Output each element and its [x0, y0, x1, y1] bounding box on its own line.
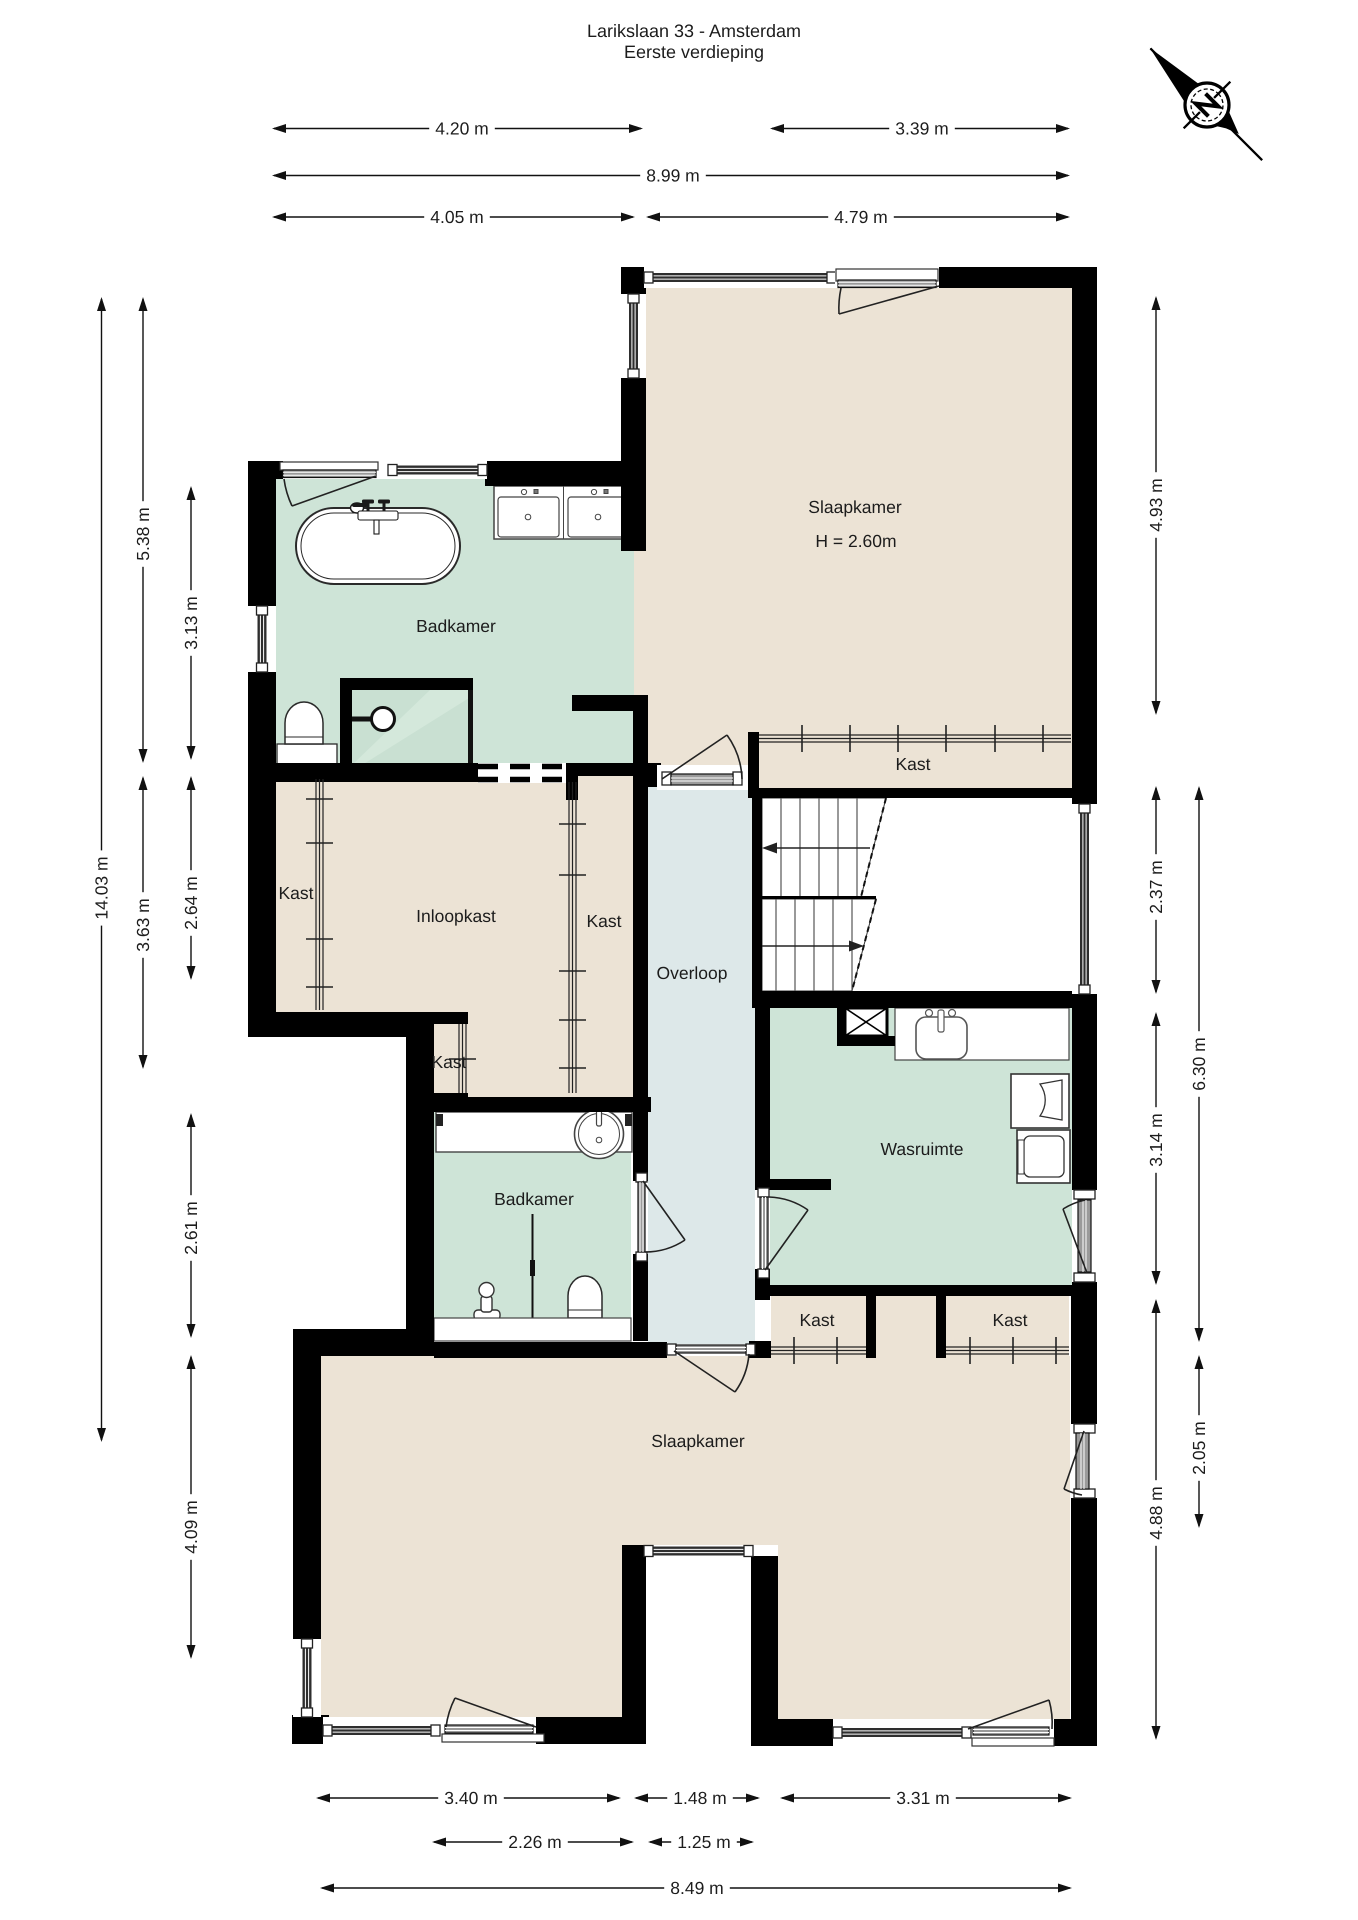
svg-text:Kast: Kast [586, 911, 621, 931]
svg-text:Inloopkast: Inloopkast [416, 906, 496, 926]
svg-text:8.49 m: 8.49 m [670, 1878, 724, 1898]
svg-text:Kast: Kast [895, 754, 930, 774]
svg-text:3.13 m: 3.13 m [181, 596, 201, 650]
svg-text:Kast: Kast [992, 1310, 1027, 1330]
svg-text:3.14 m: 3.14 m [1146, 1113, 1166, 1167]
svg-text:4.09 m: 4.09 m [181, 1500, 201, 1554]
svg-text:3.31 m: 3.31 m [896, 1788, 950, 1808]
svg-text:Kast: Kast [799, 1310, 834, 1330]
svg-text:2.37 m: 2.37 m [1146, 860, 1166, 914]
svg-text:3.63 m: 3.63 m [133, 898, 153, 952]
svg-text:Badkamer: Badkamer [494, 1189, 574, 1209]
svg-text:4.05 m: 4.05 m [430, 207, 484, 227]
svg-text:8.99 m: 8.99 m [646, 166, 700, 186]
svg-text:1.48 m: 1.48 m [673, 1788, 727, 1808]
svg-text:4.93 m: 4.93 m [1146, 478, 1166, 532]
svg-text:Eerste verdieping: Eerste verdieping [624, 42, 764, 62]
svg-text:3.39 m: 3.39 m [895, 119, 949, 139]
svg-text:2.26 m: 2.26 m [508, 1832, 562, 1852]
svg-text:Badkamer: Badkamer [416, 616, 496, 636]
svg-text:4.79 m: 4.79 m [834, 207, 888, 227]
svg-text:3.40 m: 3.40 m [444, 1788, 498, 1808]
svg-text:6.30 m: 6.30 m [1189, 1037, 1209, 1091]
svg-text:Kast: Kast [278, 883, 313, 903]
svg-text:2.61 m: 2.61 m [181, 1201, 201, 1255]
svg-text:5.38 m: 5.38 m [133, 507, 153, 561]
svg-text:1.25 m: 1.25 m [677, 1832, 731, 1852]
svg-text:Overloop: Overloop [656, 963, 727, 983]
svg-text:Kast: Kast [431, 1052, 466, 1072]
svg-text:Wasruimte: Wasruimte [881, 1139, 964, 1159]
svg-text:Slaapkamer: Slaapkamer [651, 1431, 745, 1451]
svg-text:Larikslaan 33 - Amsterdam: Larikslaan 33 - Amsterdam [587, 21, 801, 41]
svg-text:2.05 m: 2.05 m [1189, 1421, 1209, 1475]
svg-text:4.88 m: 4.88 m [1146, 1486, 1166, 1540]
svg-text:H = 2.60m: H = 2.60m [815, 531, 896, 551]
svg-text:2.64 m: 2.64 m [181, 876, 201, 930]
svg-text:Slaapkamer: Slaapkamer [808, 497, 902, 517]
svg-text:14.03 m: 14.03 m [92, 856, 112, 919]
svg-text:4.20 m: 4.20 m [435, 119, 489, 139]
